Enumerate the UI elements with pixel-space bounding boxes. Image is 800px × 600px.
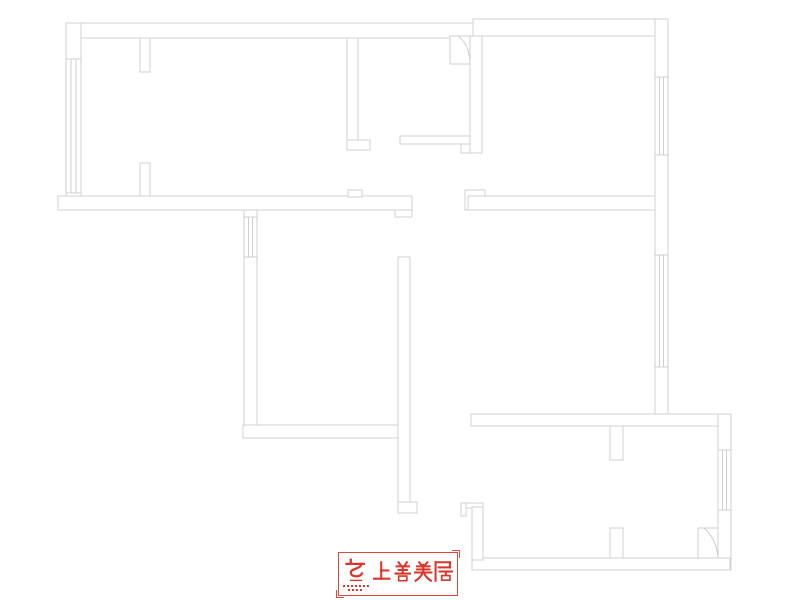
- wall-hall-band-bump: [348, 190, 362, 197]
- wall-partition-top-middle: [347, 38, 358, 150]
- wall-top-wall-left: [66, 23, 473, 38]
- window-central-room: [244, 217, 257, 257]
- wall-band-c: [471, 414, 730, 426]
- brand-name-glyphs: [373, 560, 453, 583]
- brand-logo-mark: [343, 557, 369, 591]
- window-bottomright-room: [718, 450, 731, 510]
- wall-pillar-lower: [610, 528, 623, 558]
- wall-band-b: [468, 196, 655, 210]
- window-left-balcony: [66, 59, 81, 193]
- wall-partition-top-middle-foot: [347, 140, 370, 150]
- wall-corridor-band: [400, 136, 470, 144]
- wall-pillar-upper: [610, 426, 623, 460]
- wall-central-wall-foot: [398, 502, 417, 513]
- brand-logo-text: 上善美居: [373, 560, 453, 588]
- wall-bottomroom-left-wall: [472, 507, 483, 560]
- wall-top-wall-right: [473, 19, 668, 36]
- door-entry-top-leaf: [450, 36, 470, 64]
- brand-fine-print-row: [343, 585, 369, 587]
- wall-central-wall: [398, 257, 410, 513]
- wall-centralroom-bottom-band: [243, 425, 398, 438]
- brand-logo-mark-icon: [343, 557, 369, 583]
- brand-fine-print-row: [348, 589, 364, 591]
- wall-corridor-band-end: [461, 144, 470, 153]
- wall-pier-top: [140, 38, 150, 72]
- window-topright-room: [655, 77, 668, 155]
- wall-pier-bottom: [140, 163, 150, 196]
- wall-bottom-band: [472, 558, 730, 570]
- wall-step-left-bit: [461, 503, 466, 516]
- floor-plan-page: 上善美居: [0, 0, 800, 600]
- wall-topright-room-left-wall: [470, 36, 482, 153]
- window-middle-right: [655, 255, 668, 367]
- brand-logo: 上善美居: [338, 552, 458, 596]
- floor-plan: [0, 0, 800, 600]
- door-bottomright-swing: [704, 528, 718, 558]
- wall-hall-north-band: [58, 196, 412, 210]
- wall-hall-band-end: [395, 210, 412, 217]
